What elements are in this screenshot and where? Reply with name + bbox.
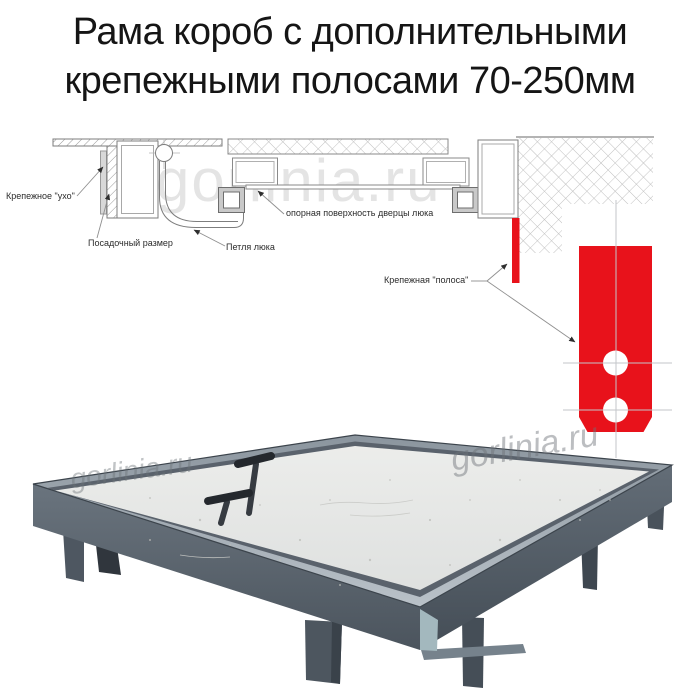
- product-photo-frame-box: [0, 0, 700, 700]
- product-card: Рама короб с дополнительными крепежными …: [0, 0, 700, 700]
- mounting-leg-shade: [331, 622, 342, 684]
